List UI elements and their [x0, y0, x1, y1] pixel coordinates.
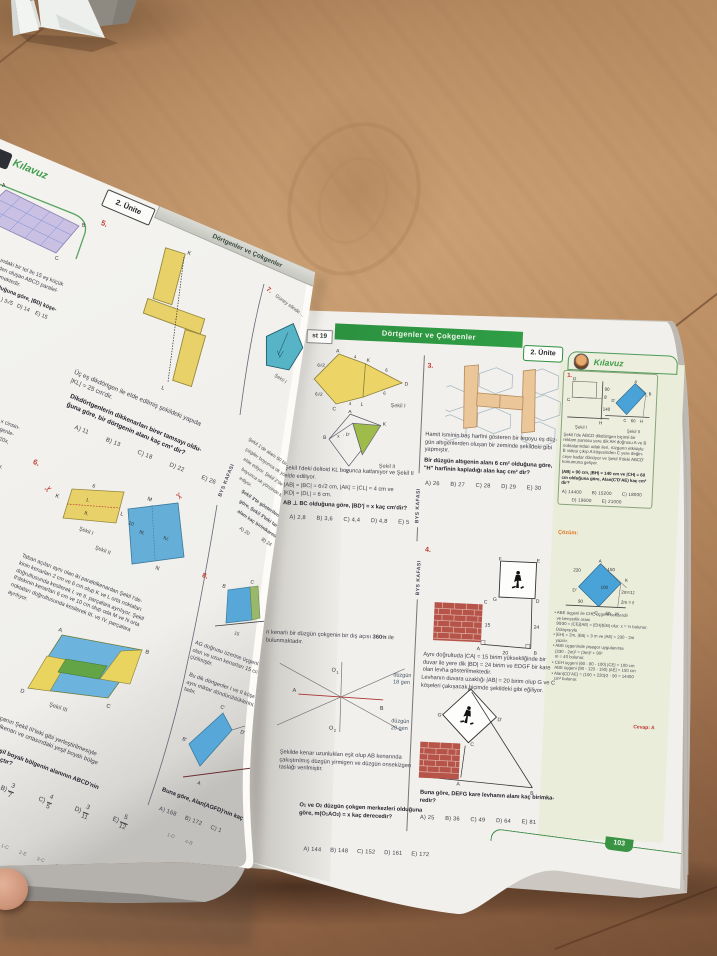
svg-text:C) 2: C) 2 [280, 548, 291, 558]
